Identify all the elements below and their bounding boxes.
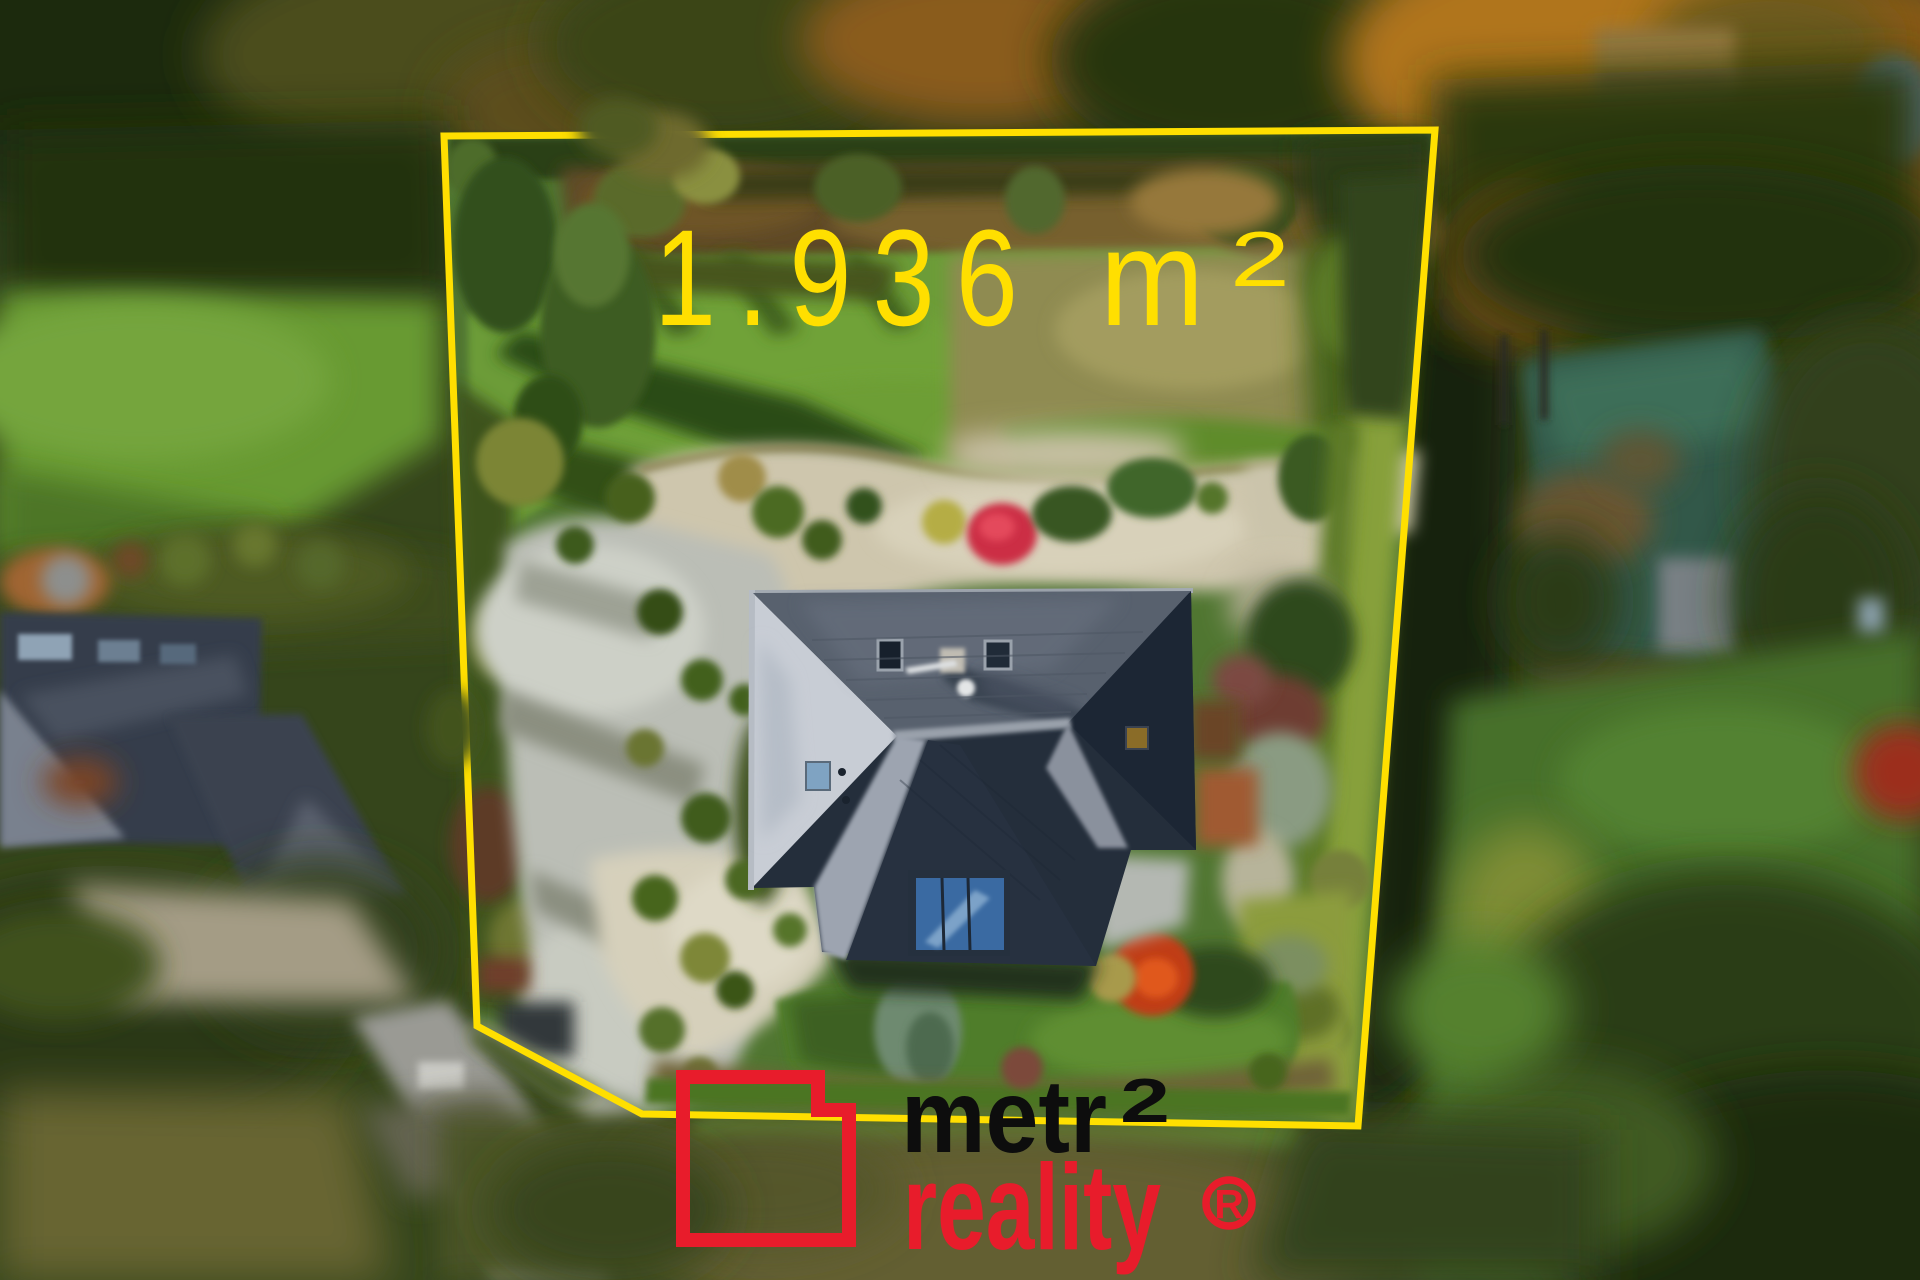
svg-text:1.936: 1.936 [654,202,1039,355]
svg-text:R: R [1214,1181,1244,1227]
svg-text:reality: reality [903,1139,1161,1275]
svg-text:2: 2 [1230,215,1290,302]
svg-text:m: m [1100,202,1204,355]
svg-text:2: 2 [1120,1067,1170,1136]
